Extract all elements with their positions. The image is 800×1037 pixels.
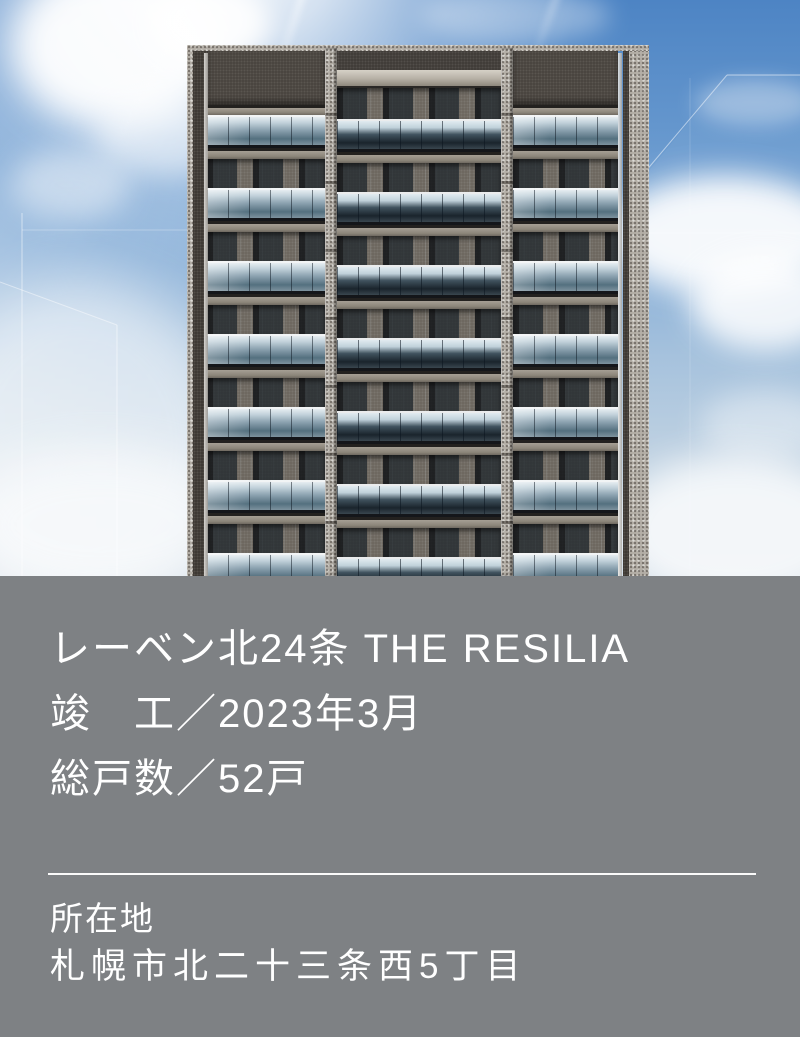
floor-slab xyxy=(513,148,618,159)
facade-pillar xyxy=(325,48,337,576)
window-recess xyxy=(207,305,325,334)
balcony-glass xyxy=(207,261,325,294)
building-right-edge xyxy=(629,45,649,576)
floor-slab xyxy=(513,105,618,115)
floor-slab xyxy=(207,367,325,378)
building-center-bay xyxy=(337,51,501,576)
balcony-glass xyxy=(207,334,325,367)
floor-slab xyxy=(207,440,325,451)
balcony-glass xyxy=(207,188,325,221)
window-recess xyxy=(513,232,618,261)
building-right-bay xyxy=(513,51,618,576)
window-recess xyxy=(513,378,618,407)
window-recess xyxy=(207,524,325,553)
window-recess xyxy=(207,232,325,261)
window-recess xyxy=(337,528,501,557)
location-address: 札幌市北二十三条西5丁目 xyxy=(50,938,526,989)
floor-slab xyxy=(513,440,618,451)
property-title: レーベン北24条 THE RESILIA xyxy=(50,616,630,674)
balcony-glass xyxy=(513,334,618,367)
floor-slab xyxy=(207,105,325,115)
window-recess xyxy=(337,88,501,119)
floor-slab xyxy=(513,294,618,305)
balcony-glass xyxy=(513,553,618,576)
window-recess xyxy=(207,159,325,188)
floor-slab xyxy=(207,513,325,524)
balcony-glass xyxy=(207,407,325,440)
floor-slab xyxy=(207,221,325,232)
balcony-end-post xyxy=(618,53,622,576)
roof-parapet-cap xyxy=(187,45,649,51)
balcony-glass xyxy=(337,557,501,576)
floor-slab xyxy=(513,367,618,378)
building-left-edge xyxy=(187,45,193,576)
floor-slab xyxy=(337,444,501,455)
parapet-wall xyxy=(513,51,618,105)
balcony-glass xyxy=(513,261,618,294)
balcony-glass xyxy=(513,407,618,440)
floor-slab xyxy=(337,152,501,163)
divider-line xyxy=(48,873,756,875)
floor-slab xyxy=(337,225,501,236)
floor-slab xyxy=(207,148,325,159)
window-recess xyxy=(337,455,501,484)
apartment-building xyxy=(187,45,649,576)
window-recess xyxy=(207,451,325,480)
building-left-bay xyxy=(207,51,325,576)
balcony-glass xyxy=(337,411,501,444)
location-label: 所在地 xyxy=(50,892,155,940)
facade-pillar xyxy=(501,48,513,576)
floor-slab xyxy=(207,294,325,305)
floor-slab xyxy=(337,298,501,309)
window-recess xyxy=(513,305,618,334)
building-photo xyxy=(0,0,800,576)
window-recess xyxy=(337,309,501,338)
completion-date: 竣 工／2023年3月 xyxy=(50,681,423,739)
window-recess xyxy=(337,163,501,192)
balcony-glass xyxy=(207,480,325,513)
floor-slab xyxy=(337,371,501,382)
floor-slab xyxy=(513,513,618,524)
balcony-glass xyxy=(337,265,501,298)
window-recess xyxy=(513,159,618,188)
window-recess xyxy=(513,524,618,553)
balcony-glass xyxy=(337,119,501,152)
balcony-glass xyxy=(337,338,501,371)
floor-slab xyxy=(337,517,501,528)
balcony-glass xyxy=(207,553,325,576)
balcony-glass xyxy=(337,192,501,225)
balcony-glass xyxy=(513,188,618,221)
floor-slab xyxy=(513,221,618,232)
window-recess xyxy=(207,378,325,407)
property-info-panel: レーベン北24条 THE RESILIA 竣 工／2023年3月 総戸数／52戸… xyxy=(0,576,800,1037)
window-recess xyxy=(337,236,501,265)
total-units: 総戸数／52戸 xyxy=(50,746,309,804)
balcony-glass xyxy=(513,115,618,148)
balcony-glass xyxy=(513,480,618,513)
balcony-end-post xyxy=(204,53,208,576)
parapet-wall xyxy=(337,51,501,70)
window-recess xyxy=(513,451,618,480)
parapet-wall xyxy=(207,51,325,105)
roof-slab xyxy=(337,70,501,88)
balcony-glass xyxy=(207,115,325,148)
page: レーベン北24条 THE RESILIA 竣 工／2023年3月 総戸数／52戸… xyxy=(0,0,800,1037)
balcony-glass xyxy=(337,484,501,517)
window-recess xyxy=(337,382,501,411)
